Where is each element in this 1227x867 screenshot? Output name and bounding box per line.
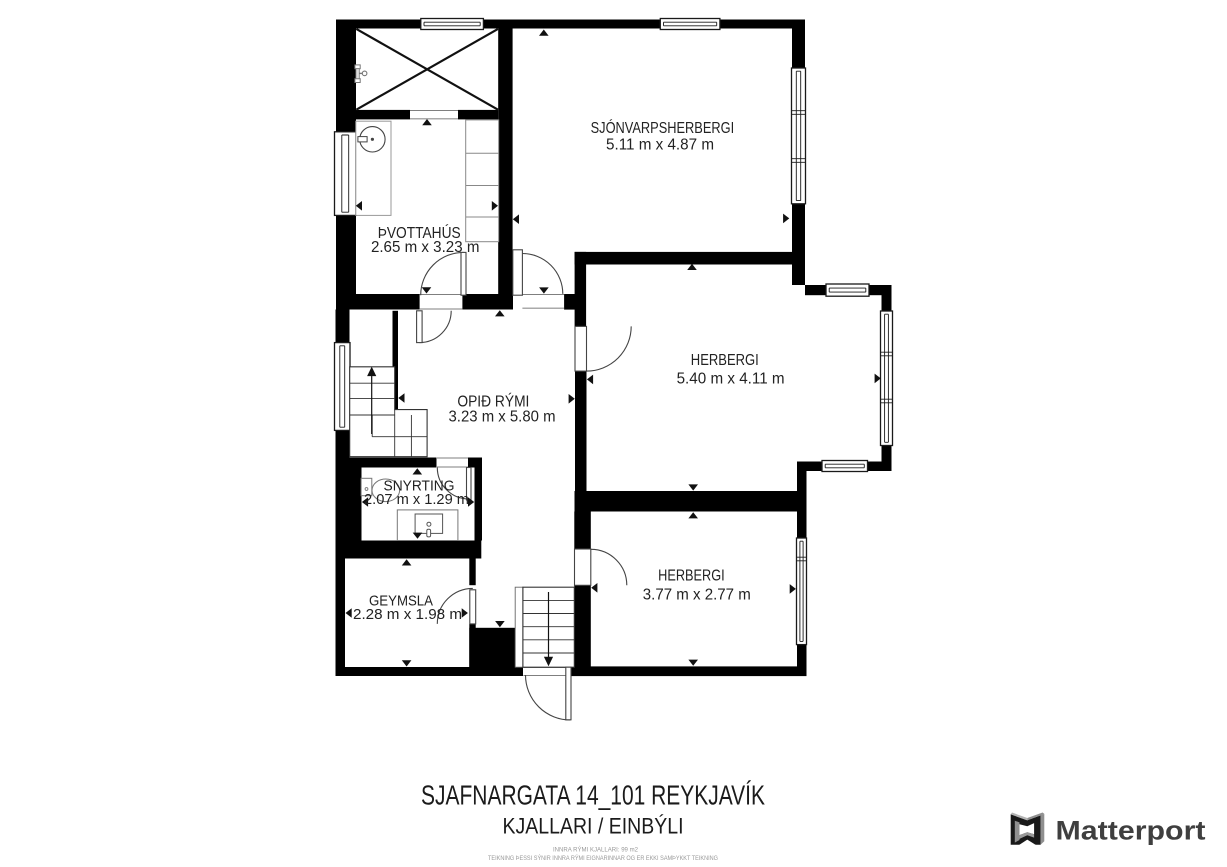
svg-text:SJÓNVARPSHERBERGI: SJÓNVARPSHERBERGI bbox=[591, 118, 735, 137]
svg-text:2.07 m x 1.29 m: 2.07 m x 1.29 m bbox=[364, 491, 469, 508]
svg-text:SJAFNARGATA 14_101 REYKJAVÍK: SJAFNARGATA 14_101 REYKJAVÍK bbox=[421, 780, 765, 811]
svg-text:Matterport: Matterport bbox=[1056, 815, 1206, 845]
svg-text:KJALLARI / EINBÝLI: KJALLARI / EINBÝLI bbox=[503, 814, 684, 839]
svg-text:2.28 m x 1.98 m: 2.28 m x 1.98 m bbox=[353, 606, 462, 623]
svg-text:3.23 m x 5.80 m: 3.23 m x 5.80 m bbox=[449, 409, 556, 426]
svg-text:HERBERGI: HERBERGI bbox=[658, 568, 725, 585]
svg-text:5.40 m x 4.11 m: 5.40 m x 4.11 m bbox=[677, 371, 785, 388]
svg-text:TEIKNING ÞESSI SÝNIR INNRA RÝM: TEIKNING ÞESSI SÝNIR INNRA RÝMI EIGNARIN… bbox=[488, 853, 718, 862]
svg-text:3.77 m x 2.77 m: 3.77 m x 2.77 m bbox=[643, 586, 751, 603]
svg-text:5.11 m x 4.87 m: 5.11 m x 4.87 m bbox=[606, 137, 714, 154]
svg-text:HERBERGI: HERBERGI bbox=[691, 352, 759, 369]
svg-text:2.65 m x 3.23 m: 2.65 m x 3.23 m bbox=[371, 239, 480, 256]
svg-text:INNRA RÝMI KJALLARI: 99 m2: INNRA RÝMI KJALLARI: 99 m2 bbox=[553, 845, 638, 854]
